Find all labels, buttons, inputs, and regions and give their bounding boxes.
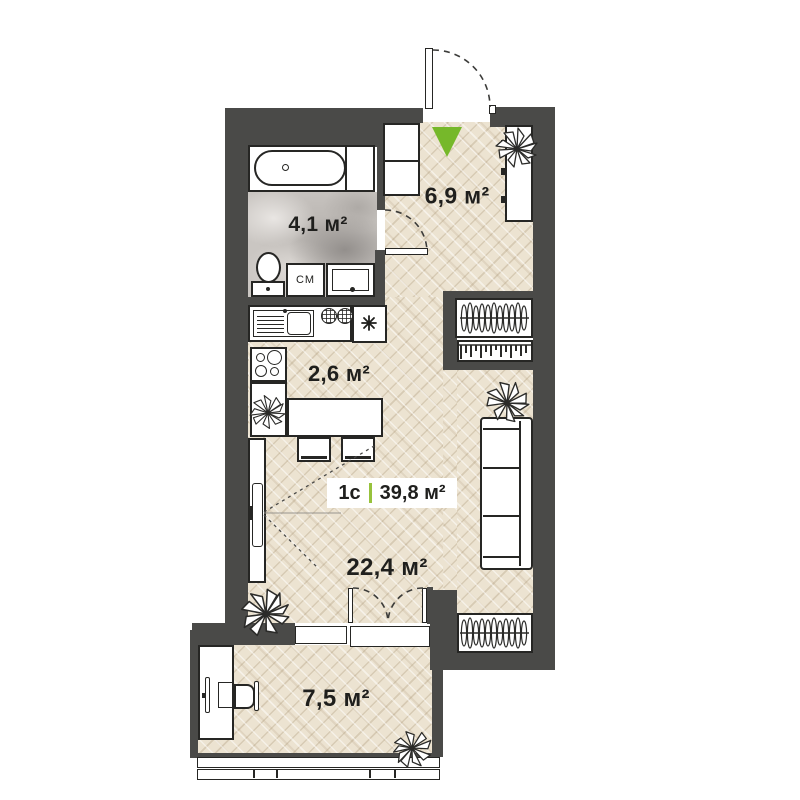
washing-machine: СМ [286, 263, 325, 297]
cabinet-hinge [501, 196, 506, 203]
toilet-tank [251, 281, 285, 297]
wall-bathroom-right-lower [375, 250, 385, 300]
entry-door-arc [433, 50, 490, 107]
washing-machine-label: СМ [296, 274, 315, 286]
cabinet-divider [385, 160, 418, 162]
glazing-divider [394, 770, 396, 778]
burner [270, 367, 279, 376]
office-chair-back [254, 681, 259, 711]
bathtub [248, 145, 375, 192]
drainboard [257, 314, 284, 333]
stove [250, 347, 287, 382]
wall-bottom-band [430, 653, 555, 670]
unit-label: 1с 39,8 м² [327, 478, 457, 508]
hallway-area-label: 6,9 м² [425, 183, 490, 210]
living-room-area-label: 22,4 м² [346, 554, 427, 582]
wall-left [225, 108, 248, 628]
kitchen-counter-plant-stand [250, 382, 287, 437]
floor-plan: СМ [0, 0, 800, 800]
hallway-cabinet-right [505, 125, 533, 222]
unit-label-divider [369, 483, 372, 503]
wardrobe-bottom-right [457, 613, 533, 653]
hob-burner [321, 308, 337, 324]
wall-room-balcony [192, 623, 295, 645]
tv-icon [252, 483, 263, 547]
entry-door-leaf [425, 48, 433, 109]
wardrobe-hanging-box [455, 298, 533, 338]
bathtub-shelf-divider [345, 147, 347, 190]
wall-right [533, 107, 555, 670]
sink-faucet [283, 309, 287, 313]
hallway-cabinet-left [383, 123, 420, 196]
desk-pc-box [218, 682, 233, 708]
sink-basin [287, 312, 311, 335]
bathtub-drain [282, 164, 289, 171]
kitchen-area-label: 2,6 м² [308, 361, 370, 387]
entrance-marker-icon [432, 127, 462, 157]
bathtub-basin [254, 150, 346, 186]
window-sill-left [295, 626, 347, 644]
sofa-cushion-line [483, 515, 520, 517]
sofa-armrest-line [483, 428, 520, 430]
hob-burner [337, 308, 353, 324]
glazing-divider [369, 770, 371, 778]
balcony-door-leaf [348, 588, 353, 623]
dining-table [287, 398, 383, 437]
balcony-glazing-top [197, 757, 440, 768]
toilet-button [266, 287, 270, 291]
cabinet-hinge [501, 168, 506, 175]
burner [267, 350, 282, 365]
cabinet-hinge [501, 140, 506, 147]
balcony-door-leaf [422, 588, 427, 623]
entry-door-jamb [489, 105, 496, 114]
washbasin [326, 263, 375, 297]
washbasin-faucet [350, 287, 355, 292]
tv-mount [248, 506, 253, 520]
unit-area-label: 39,8 м² [380, 482, 446, 505]
fridge [352, 305, 387, 343]
bathroom-door-leaf [385, 248, 428, 255]
chair-back [345, 456, 371, 459]
monitor-icon [205, 677, 210, 713]
sofa [480, 417, 533, 570]
sofa-armrest-line [483, 556, 520, 558]
wall-wardrobe-niche-top [455, 291, 533, 298]
chair [297, 437, 331, 462]
wall-top-entry-left [383, 108, 423, 123]
chair [341, 437, 375, 462]
sofa-cushion-line [483, 467, 520, 469]
monitor-mount [202, 693, 205, 698]
toilet-bowl-icon [256, 252, 281, 283]
bathroom-area-label: 4,1 м² [288, 213, 347, 237]
balcony-area-label: 7,5 м² [302, 685, 370, 713]
glazing-divider [253, 770, 255, 778]
wall-wardrobe-niche-bottom [443, 362, 533, 370]
burner [255, 365, 267, 377]
burner [256, 353, 265, 362]
unit-type-label: 1с [338, 482, 360, 505]
balcony-glazing-bottom [197, 769, 440, 780]
wall-balcony-left [190, 630, 198, 758]
wall-top-bathroom [225, 108, 383, 147]
office-chair [234, 684, 255, 709]
wardrobe-shelf-box [457, 340, 533, 362]
balcony-door-sill [350, 626, 430, 647]
chair-back [301, 456, 327, 459]
glazing-divider [276, 770, 278, 778]
wall-balcony-right [432, 647, 443, 757]
sofa-backrest-line [519, 421, 521, 566]
kitchen-counter [248, 305, 352, 342]
